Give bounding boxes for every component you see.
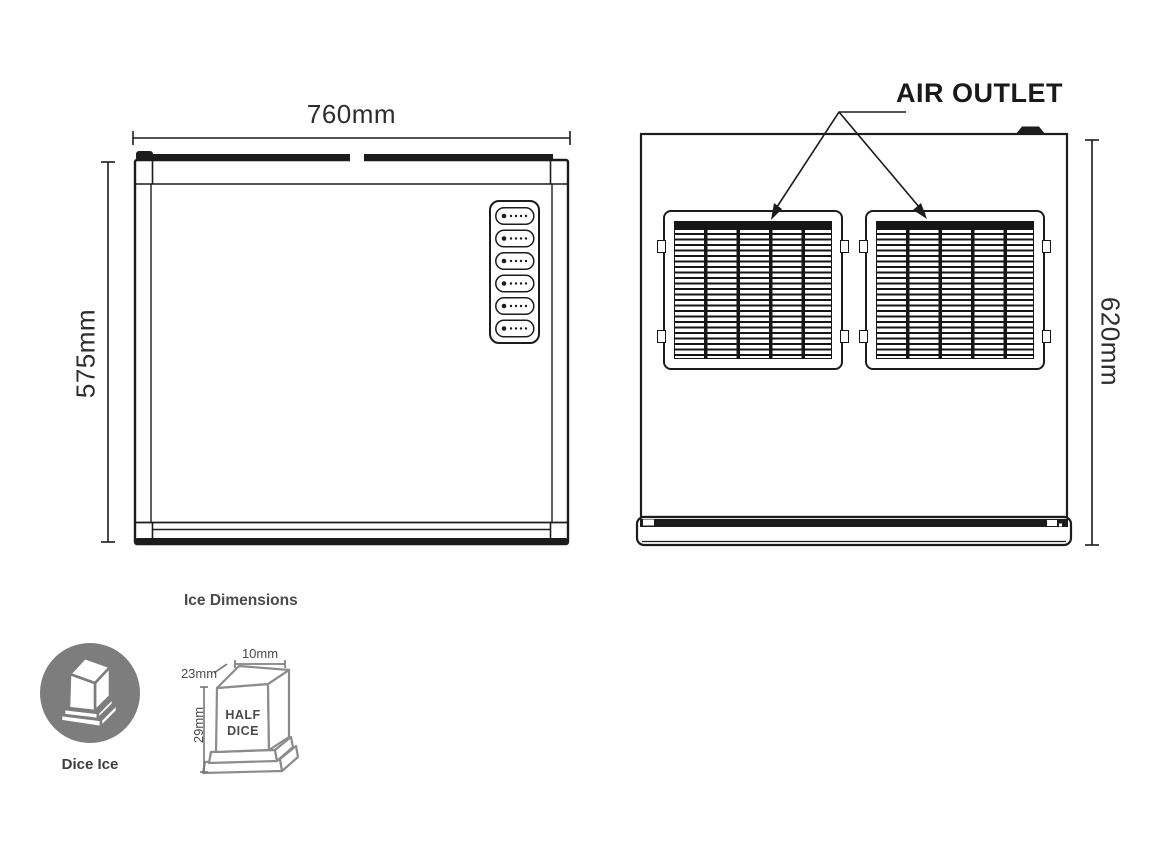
air-outlet-leader — [771, 112, 927, 220]
dice-ice-label: Dice Ice — [40, 756, 140, 773]
panel-slot — [496, 208, 534, 225]
ice-machine-spec-diagram: 760mm 575mm 620mm AIR OUTLET Ice Dimensi… — [0, 0, 1155, 841]
top-fitting — [1016, 127, 1045, 135]
lid-notch — [350, 153, 364, 163]
air-outlet-grille-right — [865, 210, 1045, 370]
ice-cube-graphic — [40, 643, 140, 743]
half-dice-label-line2: DICE — [227, 724, 259, 738]
grille-tab — [657, 330, 666, 343]
grille-tab — [840, 240, 849, 253]
dice-ice-icon — [40, 643, 140, 743]
grille-tab — [657, 240, 666, 253]
front-base-edge — [134, 538, 569, 545]
panel-slot — [496, 253, 534, 269]
back-kick-plate — [637, 517, 1071, 545]
panel-slot — [496, 298, 534, 315]
panel-slot — [496, 320, 534, 337]
grille-tab — [1042, 240, 1051, 253]
half-dice-diagram: 10mm 23mm 29mm HALF DICE — [175, 640, 320, 790]
front-width-dimension — [133, 131, 570, 145]
ice-dimensions-title: Ice Dimensions — [184, 592, 298, 610]
air-outlet-grille-left — [663, 210, 843, 370]
air-outlet-label: AIR OUTLET — [896, 78, 1063, 109]
panel-slot — [496, 230, 534, 247]
half-dice-height-label: 29mm — [191, 707, 206, 743]
back-height-label: 620mm — [1095, 282, 1126, 402]
grille-louvers — [674, 221, 832, 359]
panel-slot — [496, 275, 534, 292]
front-height-label: 575mm — [71, 294, 102, 414]
front-width-label: 760mm — [133, 99, 570, 130]
front-height-dimension — [101, 162, 115, 542]
front-view-body — [134, 151, 569, 545]
grille-tab — [840, 330, 849, 343]
grille-tab — [859, 240, 868, 253]
grille-louvers — [876, 221, 1034, 359]
lid-hinge-nub — [136, 151, 153, 161]
half-dice-width-label: 10mm — [242, 646, 278, 661]
grille-tab — [1042, 330, 1051, 343]
control-panel — [490, 201, 539, 343]
grille-tab — [859, 330, 868, 343]
half-dice-depth-label: 23mm — [181, 666, 217, 681]
half-dice-label-line1: HALF — [225, 708, 260, 722]
front-top-lid — [149, 154, 553, 161]
